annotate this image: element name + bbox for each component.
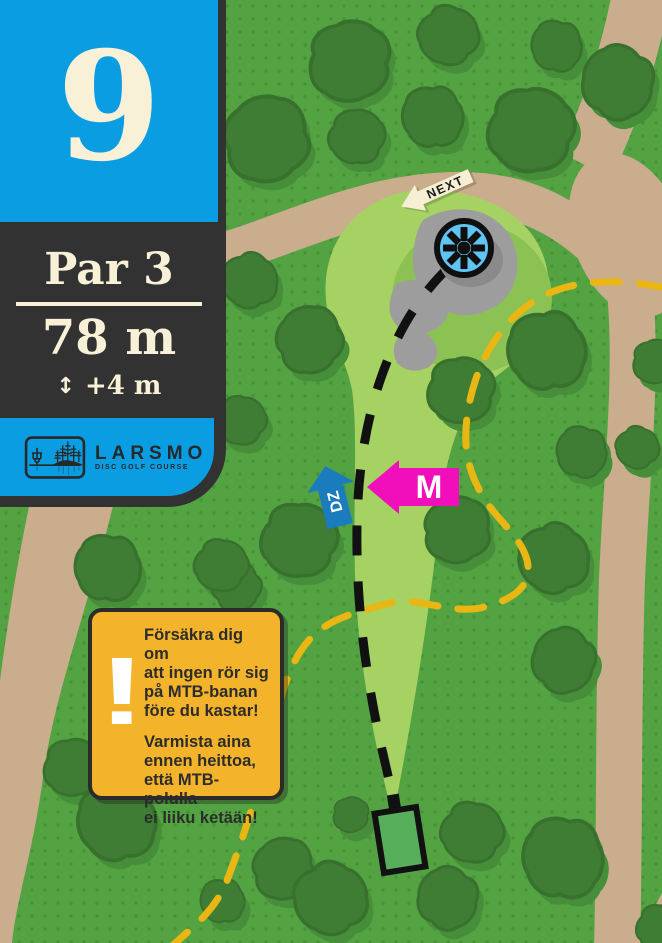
updown-arrow-icon: ↕	[57, 374, 75, 399]
tree	[633, 340, 662, 384]
warning-line-fi: että MTB-polulla	[144, 771, 272, 809]
warning-line-fi: Varmista aina	[144, 733, 272, 752]
warning-line-sv: före du kastar!	[144, 702, 272, 721]
tree	[523, 818, 603, 897]
exclamation-icon: !	[99, 644, 145, 804]
logo-name: LARSMO	[95, 443, 207, 465]
distance-label: 78 m	[42, 312, 176, 365]
warning-line-fi: ei liiku ketään!	[144, 809, 272, 828]
hole-number-box: 9	[0, 0, 218, 222]
tee-rectangle	[375, 807, 426, 873]
warning-line-sv: att ingen rör sig	[144, 664, 272, 683]
tree	[310, 21, 389, 101]
warning-text: Försäkra dig om att ingen rör sig på MTB…	[144, 626, 272, 786]
warning-box: ! Försäkra dig om att ingen rör sig på M…	[88, 608, 284, 800]
logo-mark-icon	[24, 435, 86, 480]
tree	[334, 797, 369, 832]
hole-stats: Par 3 78 m ↕ +4 m	[0, 222, 218, 418]
warning-line-sv: Försäkra dig om	[144, 626, 272, 664]
path-right-vertical	[617, 290, 633, 943]
warning-line-sv: på MTB-banan	[144, 683, 272, 702]
exclamation-column: !	[100, 626, 144, 786]
mandatory-label: M	[416, 469, 443, 505]
logo-subtitle: DISC GOLF COURSE	[95, 464, 207, 471]
hole-number: 9	[57, 32, 161, 182]
info-panel: 9 Par 3 78 m ↕ +4 m	[0, 0, 226, 507]
elevation-row: ↕ +4 m	[57, 371, 162, 401]
par-label: Par 3	[44, 246, 174, 294]
elevation-value: +4 m	[85, 371, 161, 401]
logo-box: LARSMO DISC GOLF COURSE	[0, 418, 214, 496]
logo-text: LARSMO DISC GOLF COURSE	[95, 443, 207, 472]
warning-line-fi: ennen heittoa,	[144, 752, 272, 771]
hole-map-poster: NEXT DZ M ! Försäkra dig om att ingen rö…	[0, 0, 662, 943]
basket-center	[458, 242, 471, 255]
tree	[75, 536, 140, 601]
stats-divider	[16, 302, 202, 306]
